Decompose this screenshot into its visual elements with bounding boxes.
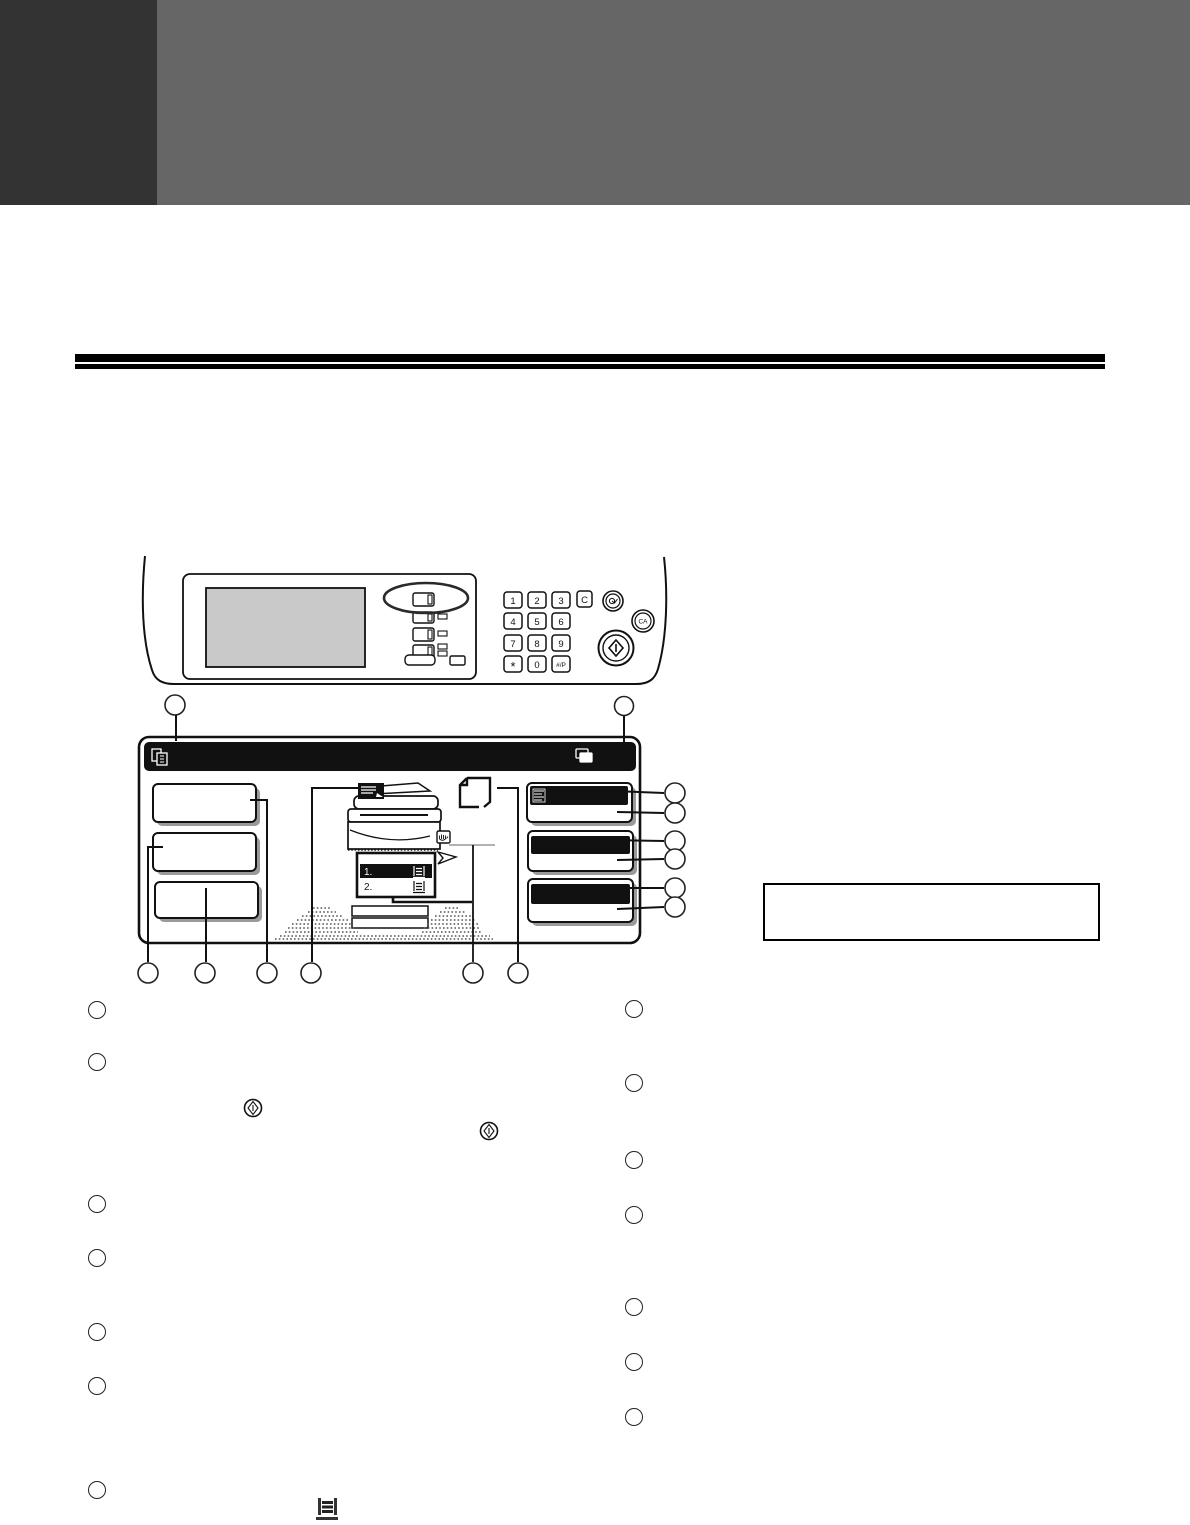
- key-0-label: 0: [534, 660, 539, 671]
- tray-row-1-label: 1.: [364, 867, 372, 878]
- clear-all-label: CA: [638, 619, 648, 626]
- mode-key-1-slot: [428, 595, 432, 604]
- list-bullet-10: [625, 1151, 643, 1169]
- left-screen-keys: [153, 784, 262, 922]
- tray-inline-icon: [314, 1495, 342, 1521]
- key-3-label: 3: [558, 596, 563, 607]
- key-4-label: 4: [510, 617, 515, 628]
- manual-page: 1 2 3 4 5 6 7 8 9 * 0 #/P C CA: [0, 0, 1190, 1525]
- key-9-label: 9: [558, 639, 563, 650]
- list-bullet-8: [625, 1000, 643, 1018]
- left-key-1: [153, 784, 256, 822]
- numeric-keypad: 1 2 3 4 5 6 7 8 9 * 0 #/P C: [504, 591, 592, 674]
- section-rule-top: [75, 354, 1105, 362]
- list-bullet-12: [625, 1298, 643, 1316]
- list-bullet-4: [88, 1249, 106, 1267]
- tray-status-box: 1. 2.: [357, 853, 435, 897]
- header-gray-banner: [157, 0, 1190, 205]
- key-hash-label: #/P: [556, 662, 566, 669]
- key-star-label: *: [510, 659, 515, 674]
- tray-row-2-label: 2.: [364, 882, 372, 893]
- note-box: [763, 883, 1100, 941]
- list-bullet-5: [88, 1323, 106, 1341]
- callout-circle-top-left: [165, 695, 185, 715]
- start-key-inline-icon-2: [477, 1119, 501, 1143]
- list-bullet-3: [88, 1195, 106, 1213]
- callout-circles-right: [665, 783, 685, 917]
- left-key-2: [153, 833, 256, 871]
- mode-key-3-slot: [428, 630, 432, 639]
- key-5-label: 5: [534, 617, 539, 628]
- callout-right-2a: [612, 840, 664, 841]
- list-bullet-13: [625, 1353, 643, 1371]
- list-bullet-6: [88, 1377, 106, 1395]
- list-bullet-1: [88, 1001, 106, 1019]
- operation-panel-diagram: 1 2 3 4 5 6 7 8 9 * 0 #/P C CA: [140, 552, 672, 704]
- right-key-2-black: [531, 836, 630, 854]
- mode-led-4b: [438, 651, 447, 656]
- start-key-inline-icon-1: [241, 1096, 265, 1120]
- list-bullet-7: [88, 1481, 106, 1499]
- header-dark-block: [0, 0, 157, 205]
- key-7-label: 7: [510, 639, 515, 650]
- touch-screen-small: [206, 588, 365, 667]
- key-6-label: 6: [558, 617, 563, 628]
- mode-led-2: [438, 614, 447, 619]
- right-screen-keys: [527, 783, 637, 926]
- copier-body: [348, 822, 440, 849]
- mode-led-3: [438, 631, 447, 636]
- key-2-label: 2: [534, 596, 539, 607]
- base-drawer-1: [352, 906, 428, 916]
- callout-circle-top-right: [615, 697, 634, 716]
- touch-screen-diagram: 1. 2.: [130, 690, 700, 990]
- logout-key-inner: [606, 594, 620, 608]
- callout-right-2b: [617, 859, 664, 860]
- list-bullet-14: [625, 1408, 643, 1426]
- key-1-label: 1: [510, 596, 515, 607]
- callout-circles-bottom: [138, 963, 528, 983]
- mode-led-4a: [438, 644, 447, 649]
- exposure-display-icon: [358, 783, 384, 799]
- section-rule-bottom: [75, 364, 1105, 369]
- key-clear-label: C: [581, 595, 588, 606]
- base-drawer-2: [352, 918, 428, 928]
- key-8-label: 8: [534, 639, 539, 650]
- bypass-hand-icon: [437, 831, 450, 843]
- message-display-bar: [144, 742, 636, 771]
- callout-right-1b: [617, 812, 664, 813]
- small-key: [450, 656, 465, 665]
- list-bullet-2: [88, 1053, 106, 1071]
- mode-key-2-slot: [428, 614, 432, 621]
- list-bullet-9: [625, 1074, 643, 1092]
- round-keys: [599, 591, 655, 666]
- wide-key: [405, 655, 435, 665]
- list-bullet-11: [625, 1206, 643, 1224]
